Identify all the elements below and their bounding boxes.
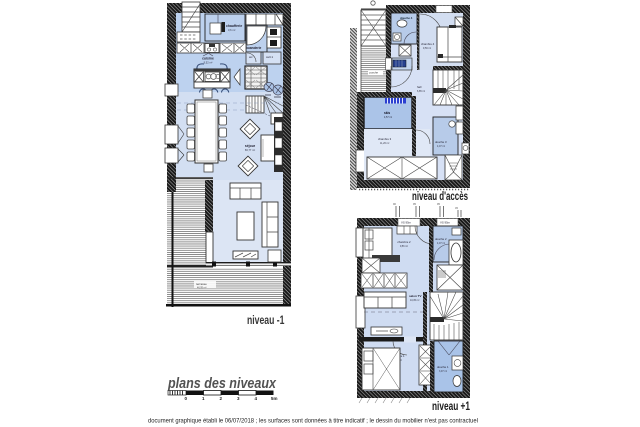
svg-text:9,56 m²: 9,56 m² bbox=[423, 47, 431, 50]
svg-text:3,6 m²: 3,6 m² bbox=[228, 28, 235, 32]
svg-text:buanderie: buanderie bbox=[246, 46, 261, 50]
svg-text:document graphique établi le 0: document graphique établi le 06/07/2018 … bbox=[148, 419, 478, 425]
svg-text:5m: 5m bbox=[271, 396, 278, 401]
svg-text:VS 95m: VS 95m bbox=[401, 221, 412, 225]
svg-text:cell.1: cell.1 bbox=[266, 55, 273, 59]
svg-text:hall: hall bbox=[417, 85, 422, 89]
svg-text:10,05 m²: 10,05 m² bbox=[410, 299, 420, 302]
svg-text:porche: porche bbox=[370, 71, 379, 75]
svg-text:niveau +1: niveau +1 bbox=[432, 399, 470, 413]
svg-text:9,52 m²: 9,52 m² bbox=[204, 61, 213, 65]
svg-text:66,77 m²: 66,77 m² bbox=[245, 148, 255, 152]
svg-text:6,85 m²: 6,85 m² bbox=[417, 90, 425, 93]
svg-text:douche 4: douche 4 bbox=[400, 16, 413, 20]
svg-text:11,26 m²: 11,26 m² bbox=[380, 142, 389, 145]
svg-text:chambre 3: chambre 3 bbox=[378, 137, 392, 141]
svg-text:niveau -1: niveau -1 bbox=[247, 313, 285, 327]
svg-text:skis: skis bbox=[384, 111, 390, 115]
svg-text:douche 1: douche 1 bbox=[437, 365, 449, 369]
svg-text:4,07 m²: 4,07 m² bbox=[437, 242, 445, 245]
svg-text:terrasse: terrasse bbox=[196, 282, 207, 286]
svg-text:wc: wc bbox=[249, 55, 253, 59]
svg-text:VS 95m: VS 95m bbox=[440, 221, 451, 225]
svg-text:chambre 4: chambre 4 bbox=[421, 42, 435, 46]
svg-text:46,95 m²: 46,95 m² bbox=[197, 287, 207, 290]
svg-text:niveau d'accès: niveau d'accès bbox=[412, 189, 468, 203]
svg-text:chambre 2: chambre 2 bbox=[397, 240, 411, 244]
svg-text:douche 3: douche 3 bbox=[435, 140, 447, 144]
svg-text:douche 2: douche 2 bbox=[435, 237, 447, 241]
svg-text:séjour: séjour bbox=[245, 144, 256, 148]
svg-text:3,97 m²: 3,97 m² bbox=[439, 370, 447, 373]
svg-text:4,57 m²: 4,57 m² bbox=[384, 116, 392, 119]
svg-text:9,56 m²: 9,56 m² bbox=[400, 245, 408, 248]
svg-text:cuisine: cuisine bbox=[202, 57, 214, 61]
svg-text:4,07 m²: 4,07 m² bbox=[437, 145, 445, 148]
svg-text:salon TV: salon TV bbox=[409, 294, 422, 298]
svg-text:chaufferie: chaufferie bbox=[226, 24, 242, 28]
svg-text:plans des niveaux: plans des niveaux bbox=[167, 375, 276, 392]
